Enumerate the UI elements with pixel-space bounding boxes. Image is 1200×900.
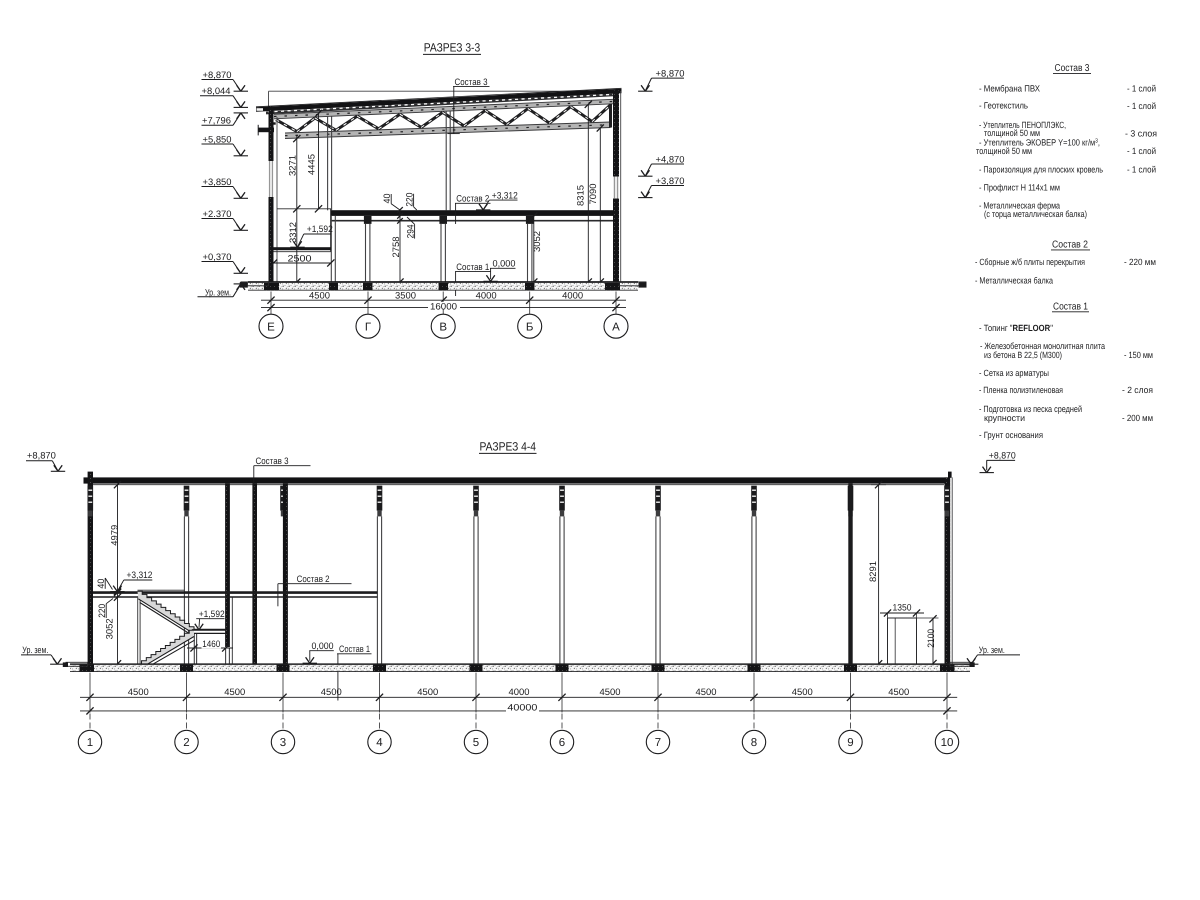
svg-text:- Мембрана ПВХ: - Мембрана ПВХ bbox=[979, 83, 1040, 93]
svg-text:2758: 2758 bbox=[391, 237, 401, 258]
svg-text:+8,870: +8,870 bbox=[656, 68, 685, 78]
svg-text:40: 40 bbox=[382, 194, 392, 204]
svg-text:- 1 слой: - 1 слой bbox=[1127, 83, 1156, 93]
svg-text:40: 40 bbox=[96, 579, 106, 589]
svg-text:3500: 3500 bbox=[395, 290, 416, 300]
svg-text:- 200 мм: - 200 мм bbox=[1122, 413, 1153, 423]
svg-text:Ур. зем.: Ур. зем. bbox=[22, 645, 48, 655]
svg-text:- 220 мм: - 220 мм bbox=[1124, 257, 1156, 267]
svg-text:4500: 4500 bbox=[224, 687, 245, 697]
svg-text:Б: Б bbox=[526, 321, 534, 333]
svg-text:294: 294 bbox=[406, 224, 416, 238]
svg-text:+0,370: +0,370 bbox=[203, 252, 232, 262]
svg-text:- Пароизоляция для плоских кро: - Пароизоляция для плоских кровель bbox=[979, 165, 1103, 175]
svg-text:Состав 1: Состав 1 bbox=[339, 644, 370, 654]
svg-text:- Сетка из арматуры: - Сетка из арматуры bbox=[979, 368, 1049, 378]
svg-text:- 2 слоя: - 2 слоя bbox=[1122, 385, 1153, 395]
svg-text:5: 5 bbox=[473, 737, 479, 749]
svg-text:40000: 40000 bbox=[507, 702, 537, 712]
svg-text:2100: 2100 bbox=[926, 629, 936, 648]
svg-text:+4,870: +4,870 bbox=[656, 154, 685, 164]
svg-text:+2.370: +2.370 bbox=[203, 209, 232, 219]
svg-text:+3,312: +3,312 bbox=[127, 570, 153, 580]
svg-text:8291: 8291 bbox=[868, 561, 878, 582]
svg-text:Состав 1: Состав 1 bbox=[456, 262, 489, 272]
svg-text:+8,044: +8,044 bbox=[202, 86, 231, 96]
svg-text:РАЗРЕЗ 4-4: РАЗРЕЗ 4-4 bbox=[480, 440, 537, 454]
svg-text:4979: 4979 bbox=[109, 525, 119, 546]
svg-text:Состав 3: Состав 3 bbox=[256, 456, 289, 466]
svg-text:крупности: крупности bbox=[984, 413, 1025, 423]
svg-text:4000: 4000 bbox=[476, 290, 497, 300]
svg-text:Г: Г bbox=[365, 321, 372, 333]
svg-text:Состав 3: Состав 3 bbox=[1055, 63, 1090, 74]
svg-text:- Сборные ж/б плиты перекрытия: - Сборные ж/б плиты перекрытия bbox=[975, 257, 1085, 267]
svg-text:6: 6 bbox=[559, 737, 565, 749]
svg-text:4500: 4500 bbox=[696, 687, 717, 697]
svg-text:9: 9 bbox=[847, 737, 853, 749]
svg-text:толщиной 50 мм: толщиной 50 мм bbox=[976, 146, 1032, 156]
svg-text:4500: 4500 bbox=[888, 687, 909, 697]
svg-text:1460: 1460 bbox=[202, 639, 220, 649]
svg-text:Состав 1: Состав 1 bbox=[1053, 301, 1088, 312]
svg-text:Состав 2: Состав 2 bbox=[297, 574, 330, 584]
svg-text:7090: 7090 bbox=[588, 184, 598, 205]
svg-text:2500: 2500 bbox=[288, 253, 312, 263]
svg-text:3052: 3052 bbox=[105, 618, 115, 639]
svg-text:220: 220 bbox=[405, 193, 415, 207]
svg-text:+7,796: +7,796 bbox=[202, 116, 231, 126]
svg-text:+1,592: +1,592 bbox=[199, 609, 225, 619]
svg-text:(с торца металлическая балка): (с торца металлическая балка) bbox=[984, 209, 1087, 219]
svg-text:4500: 4500 bbox=[128, 687, 149, 697]
svg-text:+8,870: +8,870 bbox=[203, 70, 232, 80]
svg-text:4500: 4500 bbox=[321, 687, 342, 697]
svg-text:1: 1 bbox=[87, 737, 93, 749]
svg-text:+3,850: +3,850 bbox=[203, 177, 232, 187]
svg-text:3: 3 bbox=[280, 737, 286, 749]
svg-text:- Профлист Н 114х1 мм: - Профлист Н 114х1 мм bbox=[979, 182, 1060, 192]
svg-text:- Металлическая балка: - Металлическая балка bbox=[975, 276, 1053, 286]
svg-text:4500: 4500 bbox=[417, 687, 438, 697]
svg-text:+3,312: +3,312 bbox=[492, 190, 518, 200]
svg-text:- 150 мм: - 150 мм bbox=[1124, 350, 1153, 360]
svg-text:РАЗРЕЗ 3-3: РАЗРЕЗ 3-3 bbox=[424, 41, 481, 55]
svg-text:Состав 3: Состав 3 bbox=[455, 77, 488, 87]
svg-text:толщиной 50 мм: толщиной 50 мм bbox=[984, 128, 1040, 138]
svg-text:0,000: 0,000 bbox=[493, 258, 516, 268]
svg-text:+3,870: +3,870 bbox=[656, 176, 685, 186]
svg-text:3312: 3312 bbox=[288, 222, 298, 243]
svg-text:7: 7 bbox=[655, 737, 661, 749]
svg-text:3271: 3271 bbox=[287, 155, 297, 176]
svg-text:В: В bbox=[439, 321, 447, 333]
svg-text:Ур. зем.: Ур. зем. bbox=[205, 287, 231, 297]
svg-text:4000: 4000 bbox=[562, 290, 583, 300]
svg-text:Е: Е bbox=[267, 321, 275, 333]
svg-text:+1,592: +1,592 bbox=[307, 224, 333, 234]
svg-text:- Грунт основания: - Грунт основания bbox=[979, 430, 1043, 440]
svg-text:0,000: 0,000 bbox=[312, 641, 334, 651]
svg-text:+8,870: +8,870 bbox=[989, 451, 1016, 461]
svg-text:4000: 4000 bbox=[509, 687, 530, 697]
svg-text:- Геотекстиль: - Геотекстиль bbox=[979, 101, 1028, 111]
svg-text:4500: 4500 bbox=[792, 687, 813, 697]
svg-text:- 1 слой: - 1 слой bbox=[1127, 101, 1156, 111]
svg-text:4445: 4445 bbox=[307, 154, 317, 175]
svg-text:- 3 слоя: - 3 слоя bbox=[1125, 129, 1157, 139]
svg-text:из бетона В 22,5 (М300): из бетона В 22,5 (М300) bbox=[984, 350, 1062, 360]
svg-text:Состав 2: Состав 2 bbox=[1052, 240, 1088, 251]
svg-text:- Топинг "REFLOOR": - Топинг "REFLOOR" bbox=[979, 323, 1053, 333]
svg-text:Состав 2: Состав 2 bbox=[456, 194, 489, 204]
svg-text:8: 8 bbox=[751, 737, 757, 749]
svg-text:8315: 8315 bbox=[576, 185, 586, 206]
svg-text:- 1 слой: - 1 слой bbox=[1127, 146, 1156, 156]
svg-text:1350: 1350 bbox=[893, 603, 912, 613]
svg-text:2: 2 bbox=[183, 737, 189, 749]
svg-text:220: 220 bbox=[97, 604, 107, 618]
svg-text:Ур. зем.: Ур. зем. bbox=[979, 645, 1005, 655]
svg-text:- 1 слой: - 1 слой bbox=[1127, 165, 1156, 175]
svg-text:- Пленка полиэтиленовая: - Пленка полиэтиленовая bbox=[979, 385, 1063, 395]
svg-text:+8,870: +8,870 bbox=[27, 451, 56, 461]
svg-text:4500: 4500 bbox=[309, 290, 330, 300]
svg-text:10: 10 bbox=[941, 737, 954, 749]
svg-text:3052: 3052 bbox=[532, 231, 542, 252]
svg-text:А: А bbox=[612, 321, 620, 333]
svg-text:4500: 4500 bbox=[600, 687, 621, 697]
svg-text:+5,850: +5,850 bbox=[203, 134, 232, 144]
svg-text:4: 4 bbox=[376, 737, 383, 749]
